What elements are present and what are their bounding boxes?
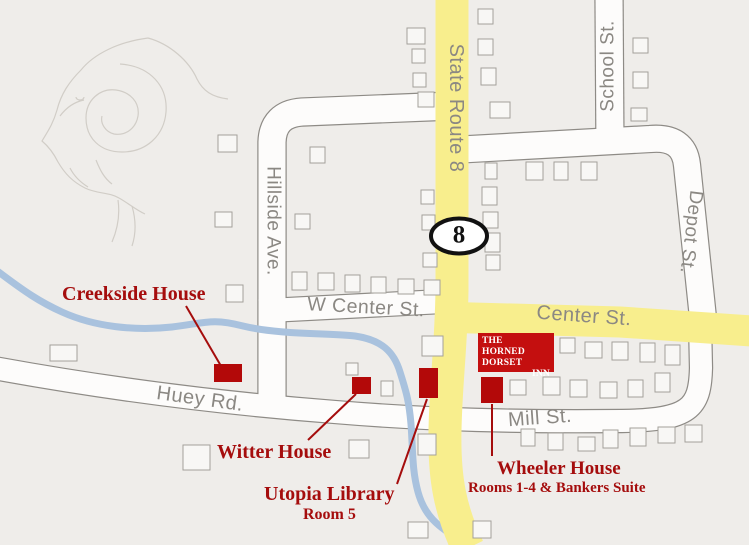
house-square [424,280,440,295]
house-square [408,522,428,538]
inn-line-1: THE [482,336,550,347]
house-square [478,9,493,24]
landmark-square-utopia [419,368,438,398]
house-square [473,521,491,538]
house-square [215,212,232,227]
house-square [612,342,628,360]
house-square [510,380,526,395]
road-label-hillside-ave: Hillside Ave. [264,166,283,276]
house-square [554,162,568,180]
house-square [412,49,425,63]
house-square [655,373,670,392]
house-square [521,429,535,446]
house-square [423,253,437,267]
house-square [218,135,237,152]
house-square [570,380,587,397]
inn-line-3: INN [482,369,550,380]
landmark-square-wheeler [481,377,503,403]
witter-house-label: Witter House [217,442,331,462]
horned-dorset-inn-box: THE HORNED DORSET INN [478,333,554,372]
map-canvas [0,0,749,545]
house-square [581,162,597,180]
house-square [422,336,443,356]
house-square [481,68,496,85]
wheeler-house-rooms-label: Rooms 1-4 & Bankers Suite [468,481,646,496]
house-square [560,338,575,353]
ram-sketch-drawing [42,38,228,246]
house-square [407,28,425,44]
house-square [371,277,386,293]
inn-line-2: HORNED DORSET [482,347,550,369]
house-square [486,255,500,270]
house-square [665,345,680,365]
house-square [349,440,369,458]
house-square [640,343,655,362]
house-square [345,275,360,292]
leader-line [186,306,221,366]
house-square [398,279,414,294]
road-label-mill-st: Mill St. [507,406,572,430]
house-square [603,430,618,448]
utopia-library-label: Utopia Library [264,484,395,504]
house-square [483,212,498,228]
house-square [482,187,497,205]
landmark-square-witter [352,377,371,394]
house-square [526,162,543,180]
road-label-school-st: School St. [599,20,618,112]
house-square [490,102,510,118]
map-screenshot: State Route 8 School St. Depot St. Hills… [0,0,749,545]
house-square [418,434,436,455]
house-square [183,445,210,470]
house-square [346,363,358,375]
wheeler-house-label: Wheeler House [497,459,621,478]
utopia-library-room-label: Room 5 [303,507,356,523]
house-square [310,147,325,163]
route-8-shield-number: 8 [453,223,466,248]
house-square [548,433,563,450]
house-square [381,381,393,396]
road-label-state-route-8: State Route 8 [446,44,466,173]
house-square [600,382,617,398]
house-square [631,108,647,121]
house-square [485,163,497,179]
house-square [50,345,77,361]
house-square [585,342,602,358]
creekside-house-label: Creekside House [62,284,206,304]
house-square [318,273,334,290]
house-square [295,214,310,229]
house-square [413,73,426,87]
house-square [658,427,675,443]
house-square [628,380,643,397]
landmark-square-creekside [214,364,242,382]
house-square [630,428,646,446]
house-square [633,38,648,53]
house-square [478,39,493,55]
house-square [421,190,434,204]
house-square [633,72,648,88]
house-square [226,285,243,302]
house-square [292,272,307,290]
house-square [685,425,702,442]
house-square [578,437,595,451]
house-square [418,92,434,107]
